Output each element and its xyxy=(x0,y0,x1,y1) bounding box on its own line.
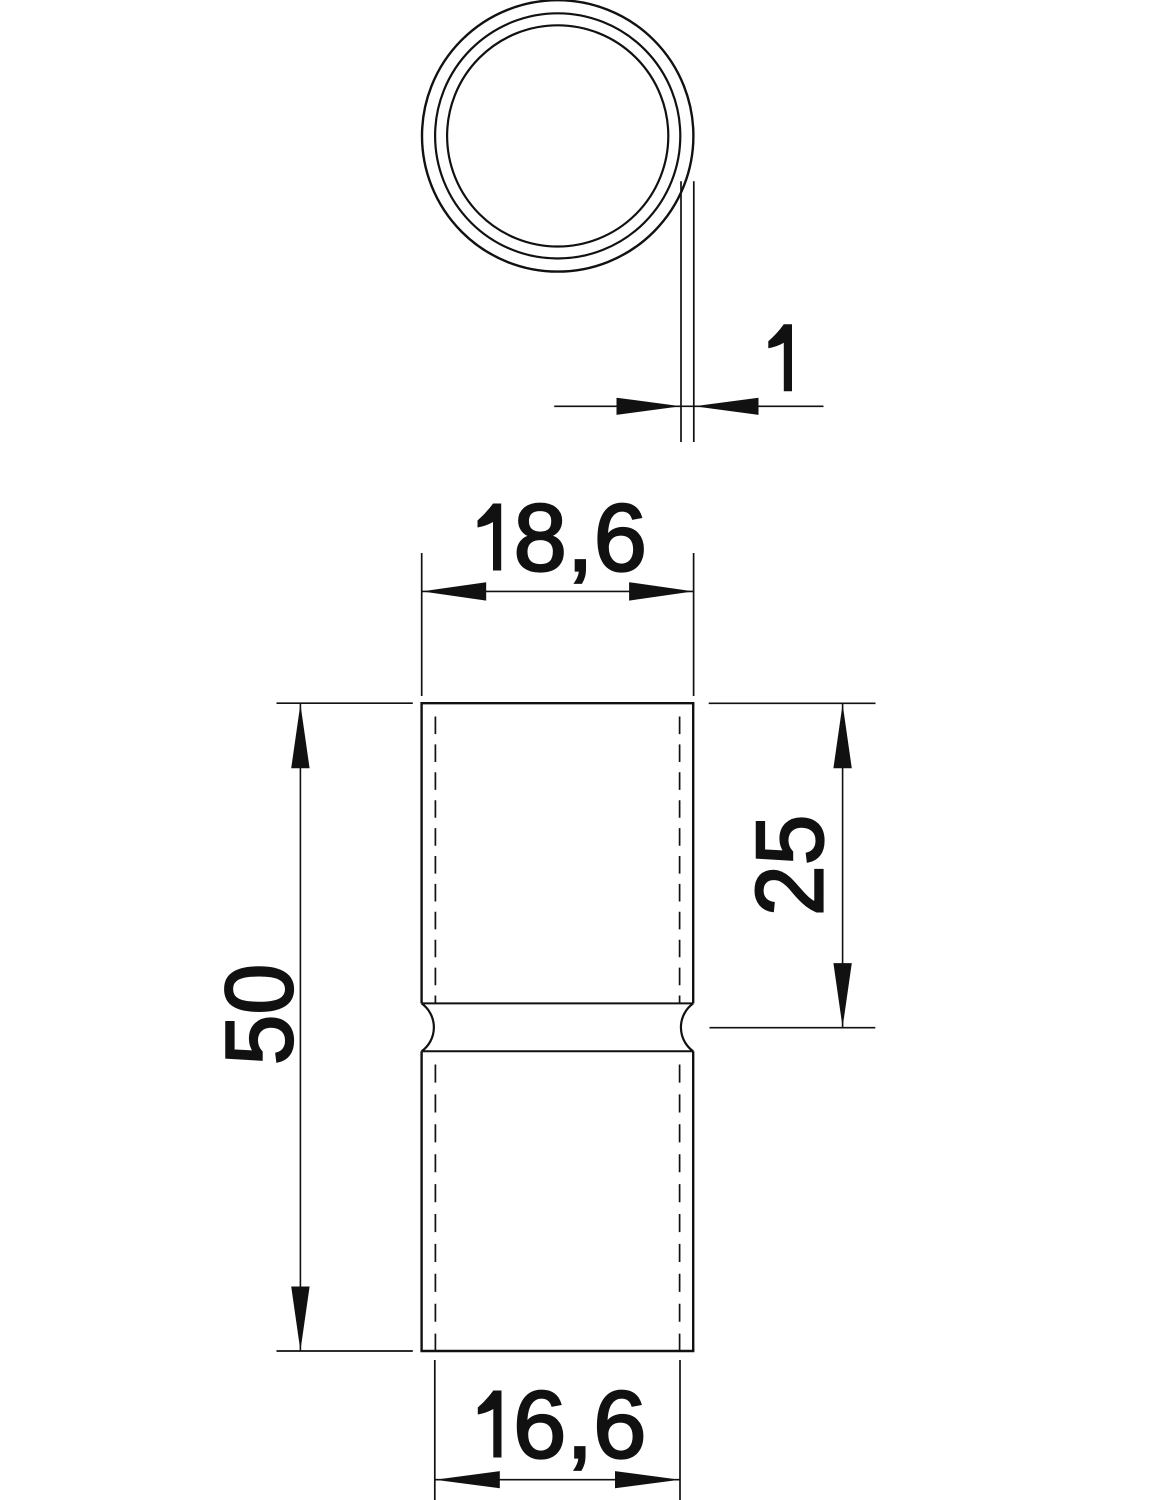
svg-text:25: 25 xyxy=(735,815,843,916)
svg-text:50: 50 xyxy=(205,964,313,1065)
svg-text:8,6: 8,6 xyxy=(514,485,647,592)
svg-text:6,6: 6,6 xyxy=(513,1372,646,1479)
